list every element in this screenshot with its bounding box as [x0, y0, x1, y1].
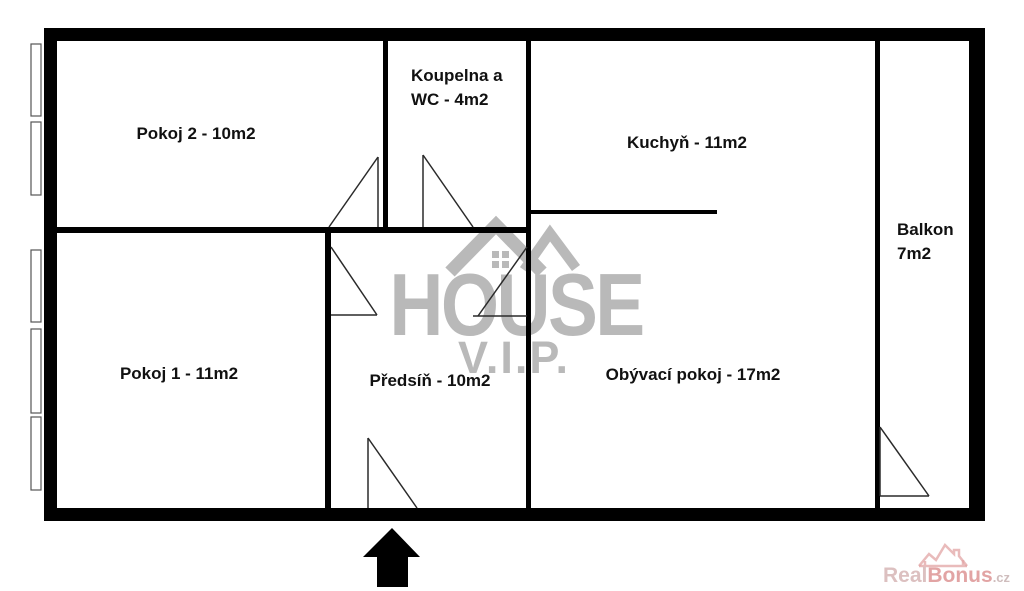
entrance-arrow-icon: [363, 528, 420, 587]
wall-pokoj2-koupelna: [383, 41, 388, 233]
window-marker: [31, 329, 41, 413]
window-marker: [31, 44, 41, 116]
window-marker: [31, 122, 41, 195]
door-swing-obyvaci: [473, 247, 527, 316]
room-label-koupelna-line1: Koupelna a: [411, 64, 503, 88]
window-markers: [31, 44, 41, 490]
room-label-pokoj1: Pokoj 1 - 11m2: [120, 362, 238, 386]
wall-outer-top: [44, 28, 985, 41]
room-label-balkon-line2: 7m2: [897, 242, 954, 266]
wall-outer-bottom: [44, 508, 985, 521]
floor-plan-page: HOUSE V.I.P.: [0, 0, 1024, 591]
door-swing-pokoj1: [331, 247, 377, 315]
wall-outer-right: [969, 28, 985, 521]
door-swing-pokoj2: [329, 157, 378, 227]
realbonus-wordmark: RealBonus.cz: [883, 564, 1010, 588]
room-label-obyvaci: Obývací pokoj - 17m2: [606, 363, 781, 387]
realbonus-logo: RealBonus.cz: [883, 540, 1023, 590]
room-label-balkon-line1: Balkon: [897, 218, 954, 242]
brand-part-real: Real: [883, 564, 927, 587]
wall-horizontal-divider: [57, 227, 531, 233]
room-label-koupelna-line2: WC - 4m2: [411, 88, 503, 112]
window-marker: [31, 250, 41, 322]
brand-part-bonus: Bonus: [927, 564, 992, 587]
wall-kitchen-counter: [531, 210, 717, 214]
room-label-kuchyn: Kuchyň - 11m2: [627, 131, 747, 155]
brand-tld: .cz: [993, 570, 1010, 585]
room-label-koupelna: Koupelna a WC - 4m2: [411, 64, 503, 112]
window-marker: [31, 417, 41, 490]
wall-center-vertical: [526, 41, 531, 508]
floor-plan-canvas: [0, 0, 1024, 591]
room-label-balkon: Balkon 7m2: [897, 218, 954, 266]
door-swing-entrance: [368, 438, 417, 508]
room-label-predsin: Předsíň - 10m2: [370, 369, 491, 393]
door-swing-balkon: [880, 427, 929, 496]
outer-walls: [44, 28, 985, 521]
door-swings: [329, 155, 929, 508]
wall-outer-left: [44, 28, 57, 521]
room-label-pokoj2: Pokoj 2 - 10m2: [136, 122, 255, 146]
wall-pokoj1-predsin: [325, 233, 331, 508]
door-swing-koupelna: [423, 155, 473, 227]
